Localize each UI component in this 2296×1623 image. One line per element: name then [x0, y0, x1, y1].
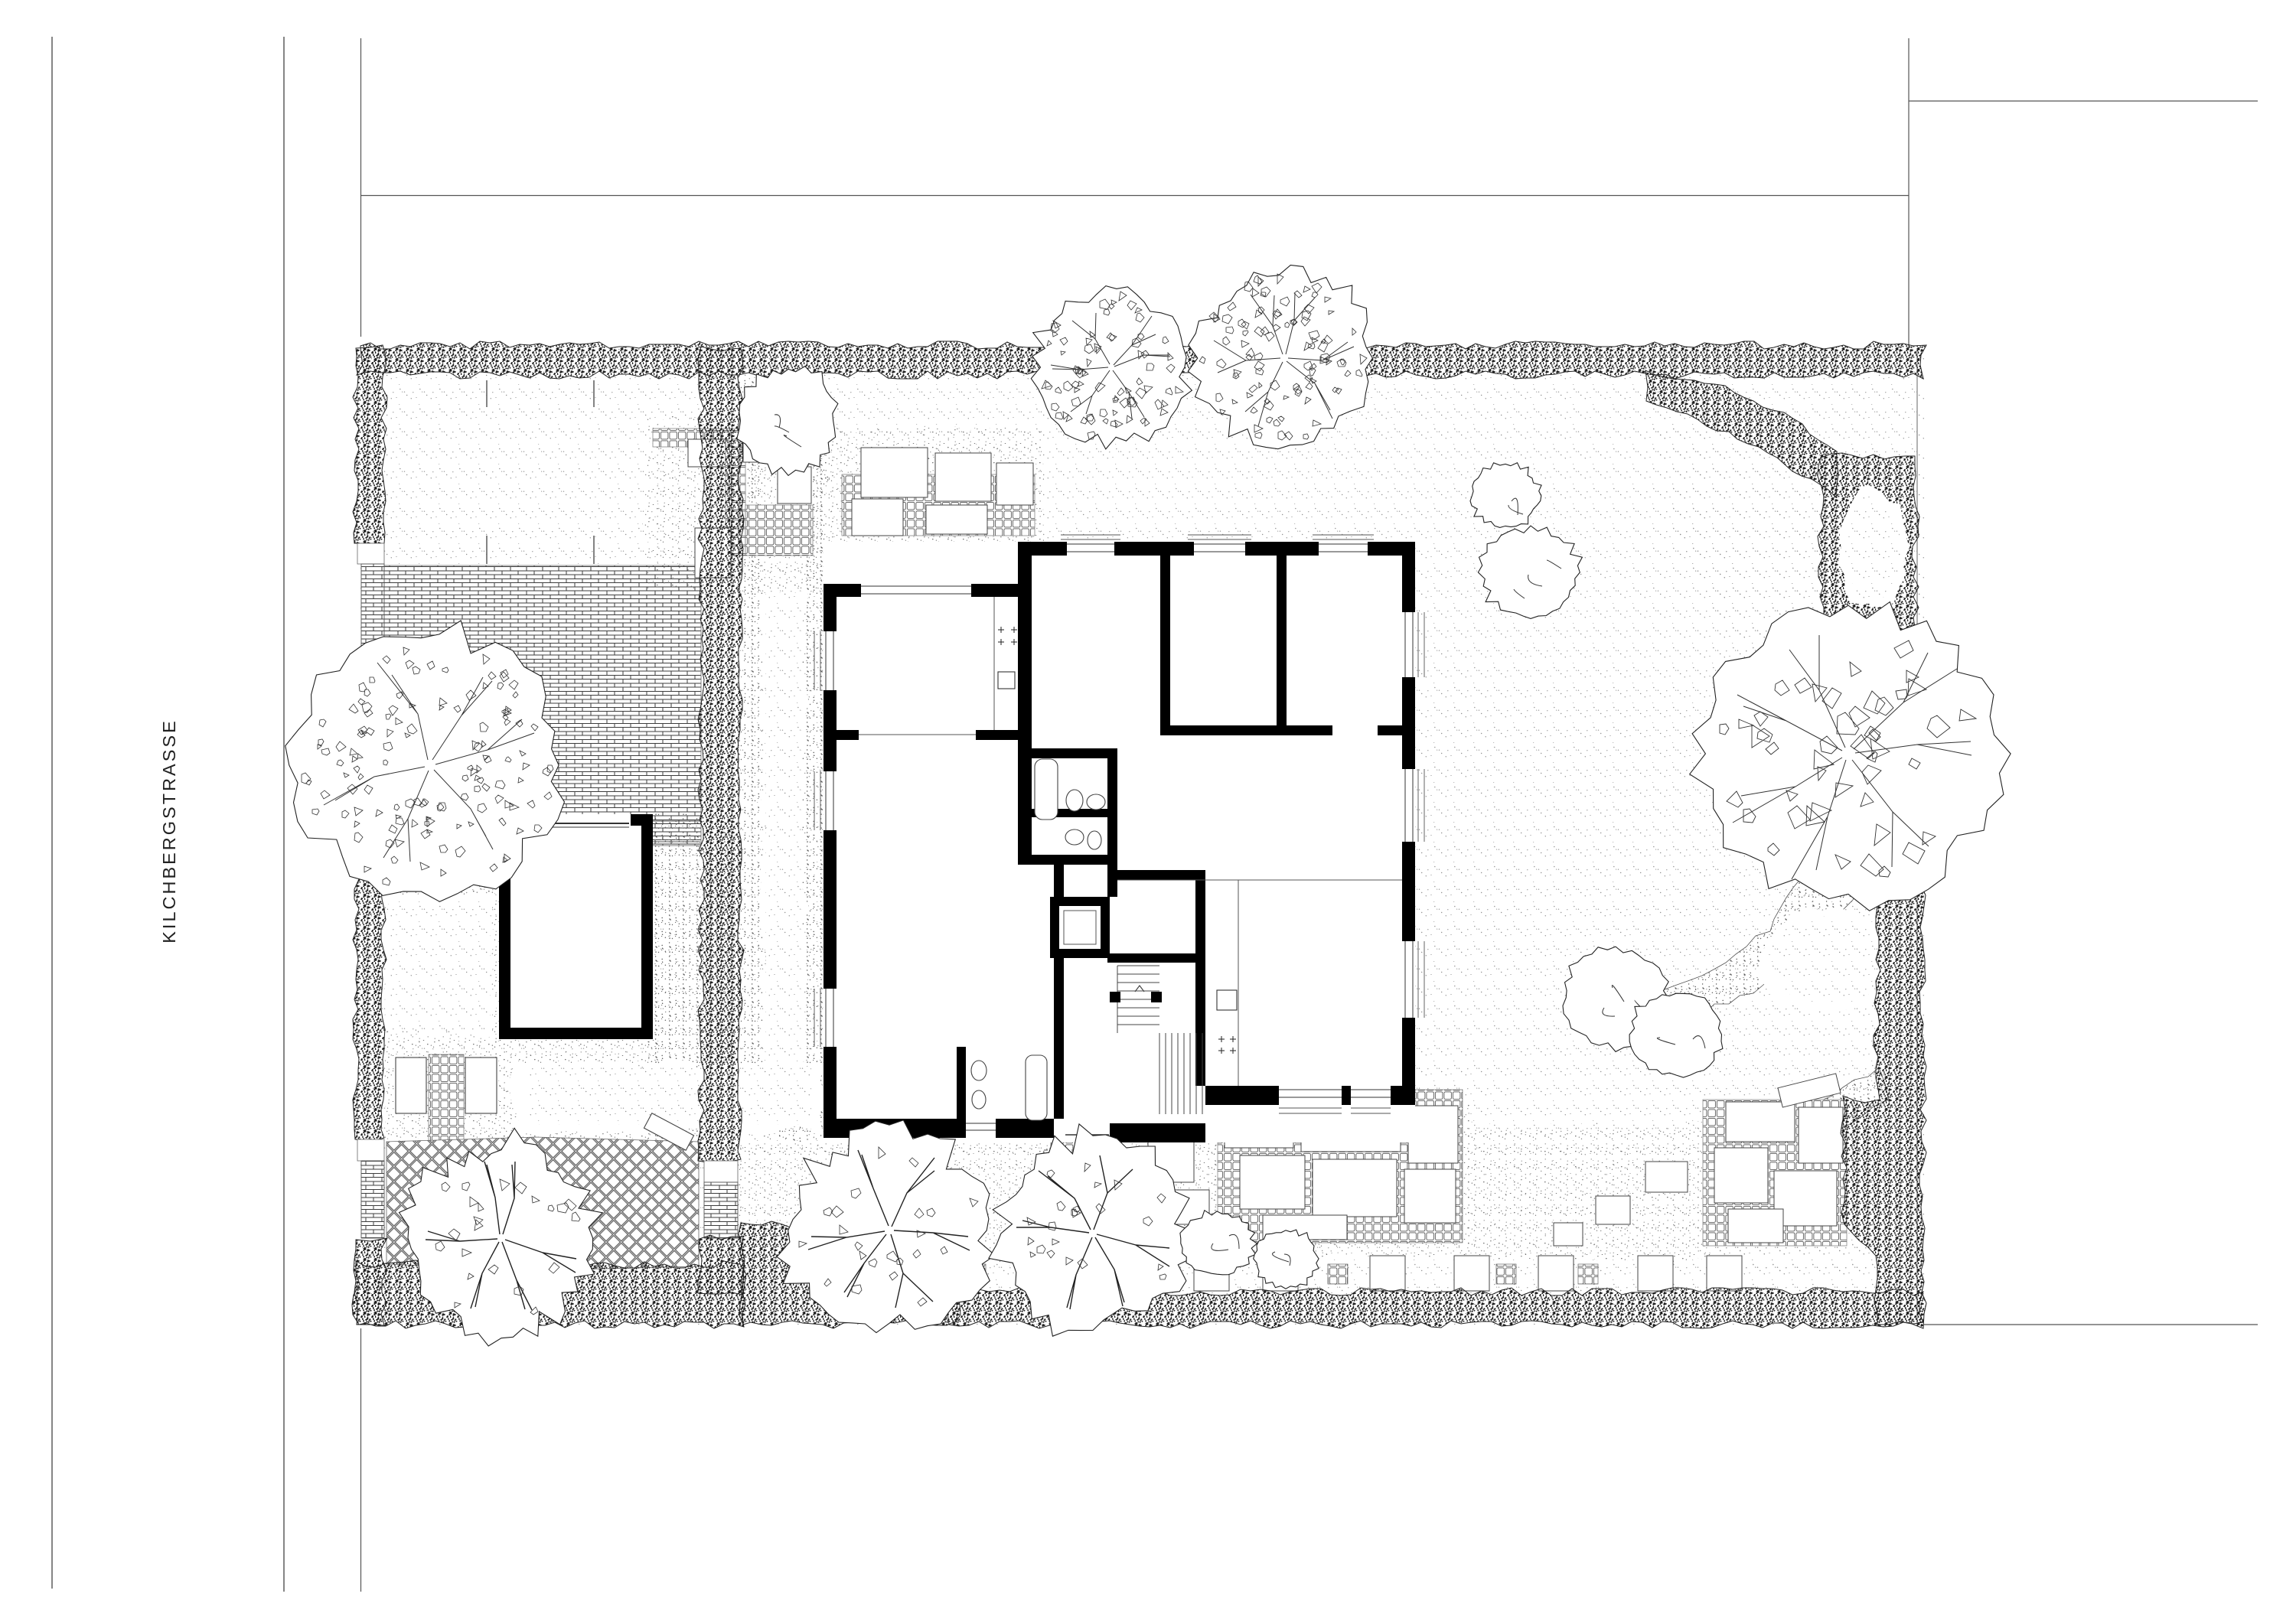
svg-text:KILCHBERGSTRASSE: KILCHBERGSTRASSE [159, 719, 179, 943]
